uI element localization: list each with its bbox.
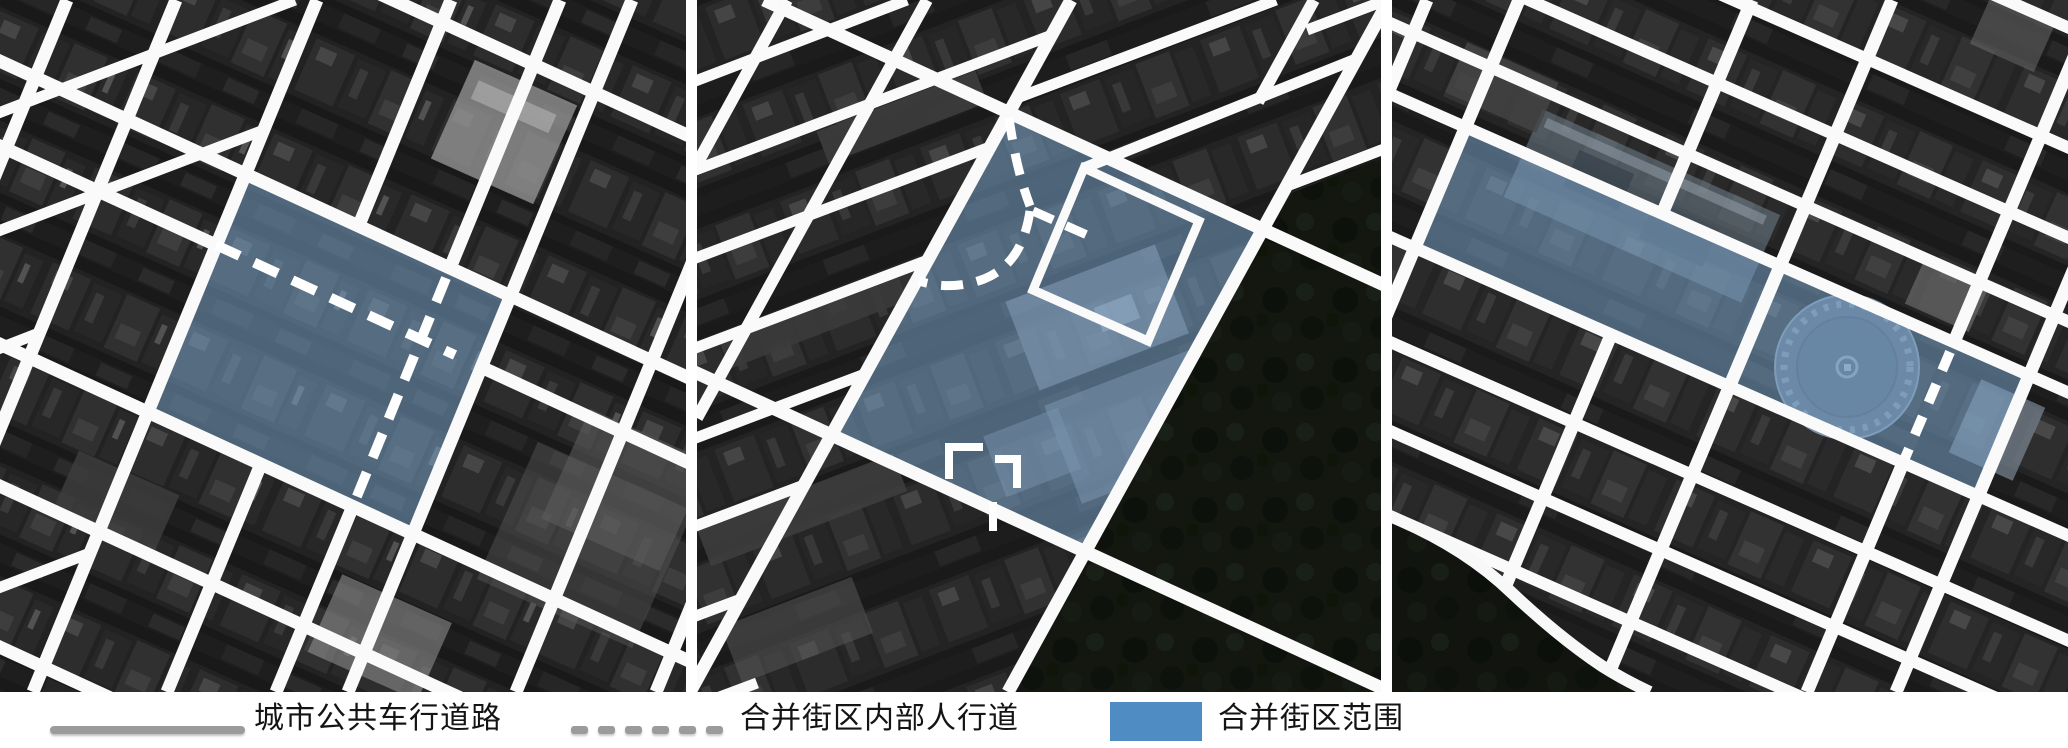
figure-canvas: 城市公共车行道路 合并街区内部人行道 合并街区范围 — [0, 0, 2068, 748]
map-panel-2 — [697, 0, 1381, 692]
dashed-line-swatch — [571, 726, 731, 734]
legend-label-merged-block: 合并街区范围 — [1218, 701, 1404, 737]
road-line-swatch — [50, 726, 245, 734]
map-panels — [0, 0, 2068, 692]
legend-bar: 城市公共车行道路 合并街区内部人行道 合并街区范围 — [0, 692, 2068, 748]
legend-label-road: 城市公共车行道路 — [254, 701, 502, 737]
aerial-map-2 — [697, 0, 1381, 692]
aerial-map-1 — [0, 0, 686, 692]
merged-block-swatch — [1110, 702, 1202, 741]
aerial-map-3 — [1392, 0, 2068, 692]
map-panel-3 — [1392, 0, 2068, 692]
map-panel-1 — [0, 0, 686, 692]
legend-label-internal-path: 合并街区内部人行道 — [740, 701, 1019, 737]
